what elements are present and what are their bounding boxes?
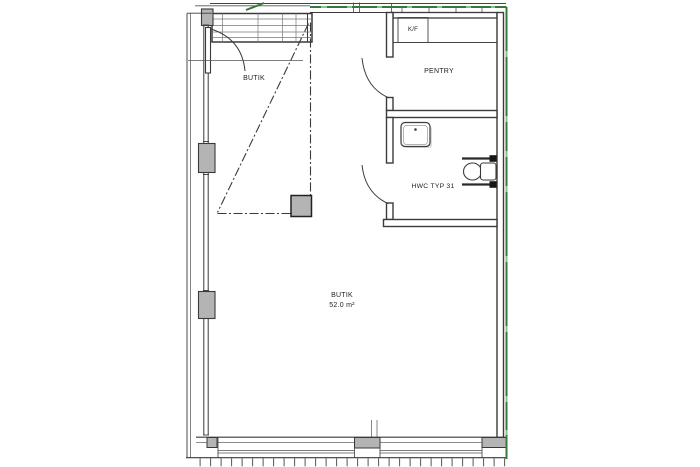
fridge-freezer-label: K/F [398, 17, 428, 42]
pentry-hwc-walls [384, 13, 498, 227]
sightline-dashdot [218, 23, 311, 214]
pavement-tick-hatch [196, 458, 506, 466]
facade-pilaster [199, 144, 216, 173]
main-room-area: 52.0 m² [307, 301, 377, 311]
floor-plan-canvas: BUTIK BUTIK 52.0 m² PENTRY K/F HWC TYP 3… [0, 0, 700, 467]
entry-door-room-label: BUTIK [229, 74, 279, 84]
right-wall [497, 13, 504, 438]
toilet-icon [464, 163, 497, 180]
pentry-door-arc [362, 58, 388, 98]
entrance-wall [202, 9, 313, 42]
bottom-glazed-wall [186, 420, 506, 466]
left-glazed-wall [187, 13, 215, 458]
pentry-room-label: PENTRY [409, 67, 469, 77]
main-room-label: BUTIK 52.0 m² [307, 291, 377, 311]
green-diagonal-mark [246, 3, 264, 10]
hwc-door-arc [362, 165, 388, 204]
plan-drawing [0, 0, 700, 467]
hwc-room-label: HWC TYP 31 [398, 182, 468, 192]
facade-pilaster [199, 292, 216, 319]
column [291, 196, 312, 217]
sink-icon [401, 123, 432, 149]
main-room-name: BUTIK [307, 291, 377, 301]
